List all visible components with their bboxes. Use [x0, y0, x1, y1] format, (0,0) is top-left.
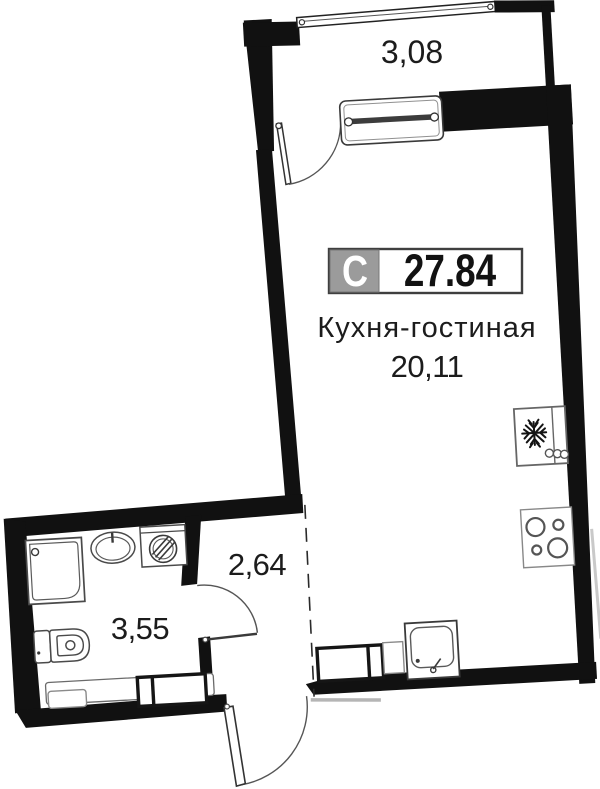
svg-text:С: С: [342, 247, 368, 296]
svg-text:27.84: 27.84: [404, 246, 496, 296]
svg-text:3,08: 3,08: [381, 34, 443, 70]
svg-text:20,11: 20,11: [391, 349, 464, 384]
svg-text:Кухня-гостиная: Кухня-гостиная: [317, 312, 536, 344]
svg-text:2,64: 2,64: [228, 547, 287, 582]
svg-text:3,55: 3,55: [111, 611, 169, 646]
